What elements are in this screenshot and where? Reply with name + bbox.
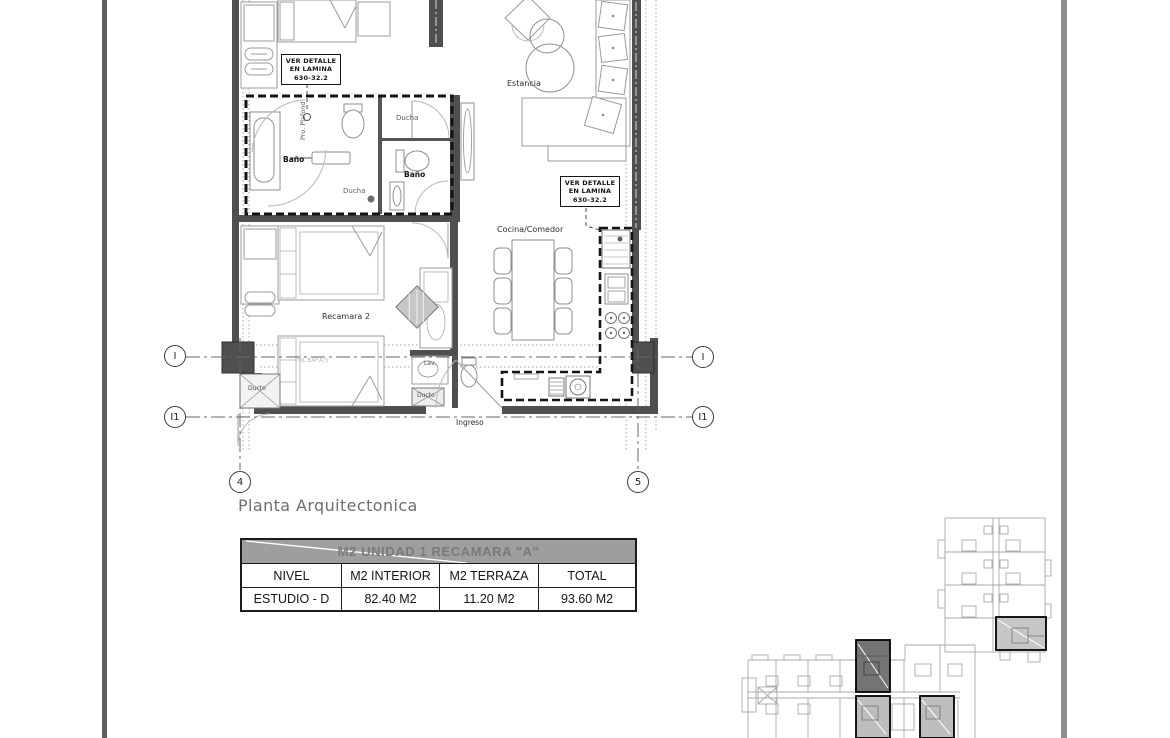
room-label-bano-main: Baño	[283, 156, 304, 164]
room-label-estancia: Estancia	[507, 80, 541, 88]
area-table-header: M2 UNIDAD 1 RECAMARA "A"	[242, 540, 635, 564]
cell-total: 93.60 M2	[539, 588, 635, 610]
col-header-nivel: NIVEL	[242, 564, 342, 588]
room-label-ducha-main: Ducha	[343, 188, 365, 195]
room-label-ingreso: Ingreso	[456, 419, 484, 427]
room-label-recamara-2: Recamara 2	[322, 313, 370, 321]
grid-marker-col-4: 4	[229, 471, 251, 493]
detail-note-line: EN LAMINA	[285, 65, 337, 73]
label-ducto-2: Ducto	[417, 393, 435, 399]
area-table: M2 UNIDAD 1 RECAMARA "A" NIVEL M2 INTERI…	[240, 538, 637, 612]
grid-marker-row-I1-right: I1	[692, 406, 714, 428]
plan-title: Planta Arquitectonica	[238, 496, 418, 515]
detail-note-line: 630-32.2	[285, 74, 337, 82]
label-centerline-note: POL.BAF.A/3	[295, 359, 328, 365]
area-table-row: ESTUDIO - D 82.40 M2 11.20 M2 93.60 M2	[242, 588, 635, 610]
col-header-interior: M2 INTERIOR	[342, 564, 440, 588]
area-table-column-headers: NIVEL M2 INTERIOR M2 TERRAZA TOTAL	[242, 564, 635, 588]
detail-note-line: VER DETALLE	[564, 179, 616, 187]
detail-note-line: 630-32.2	[564, 196, 616, 204]
room-label-cocina-comedor: Cocina/Comedor	[497, 226, 563, 234]
grid-marker-col-5: 5	[627, 471, 649, 493]
cell-nivel: ESTUDIO - D	[242, 588, 342, 610]
area-table-title: M2 UNIDAD 1 RECAMARA "A"	[338, 544, 540, 559]
floorplan-drawing	[140, 0, 720, 478]
key-plan	[735, 515, 1067, 738]
room-label-bano-2: Baño	[404, 171, 425, 179]
label-pro-plafond: Pro. Plafond	[300, 101, 307, 140]
col-header-total: TOTAL	[539, 564, 635, 588]
detail-note-line: VER DETALLE	[285, 57, 337, 65]
label-lav: Lav.	[424, 361, 436, 367]
detail-note-2: VER DETALLE EN LAMINA 630-32.2	[560, 176, 620, 207]
detail-note-1: VER DETALLE EN LAMINA 630-32.2	[281, 54, 341, 85]
grid-marker-row-I1-left: I1	[164, 406, 186, 428]
col-header-terraza: M2 TERRAZA	[440, 564, 539, 588]
cell-interior: 82.40 M2	[342, 588, 440, 610]
detail-note-line: EN LAMINA	[564, 187, 616, 195]
grid-marker-row-I-left: I	[164, 345, 186, 367]
room-label-ducha-2: Ducha	[396, 115, 418, 122]
drawing-sheet: { "plan": { "title": "Planta Arquitecton…	[0, 0, 1170, 738]
cell-terraza: 11.20 M2	[440, 588, 539, 610]
sheet-border-left	[102, 0, 107, 738]
grid-marker-row-I-right: I	[692, 346, 714, 368]
label-ducto: Ducto	[248, 386, 266, 392]
